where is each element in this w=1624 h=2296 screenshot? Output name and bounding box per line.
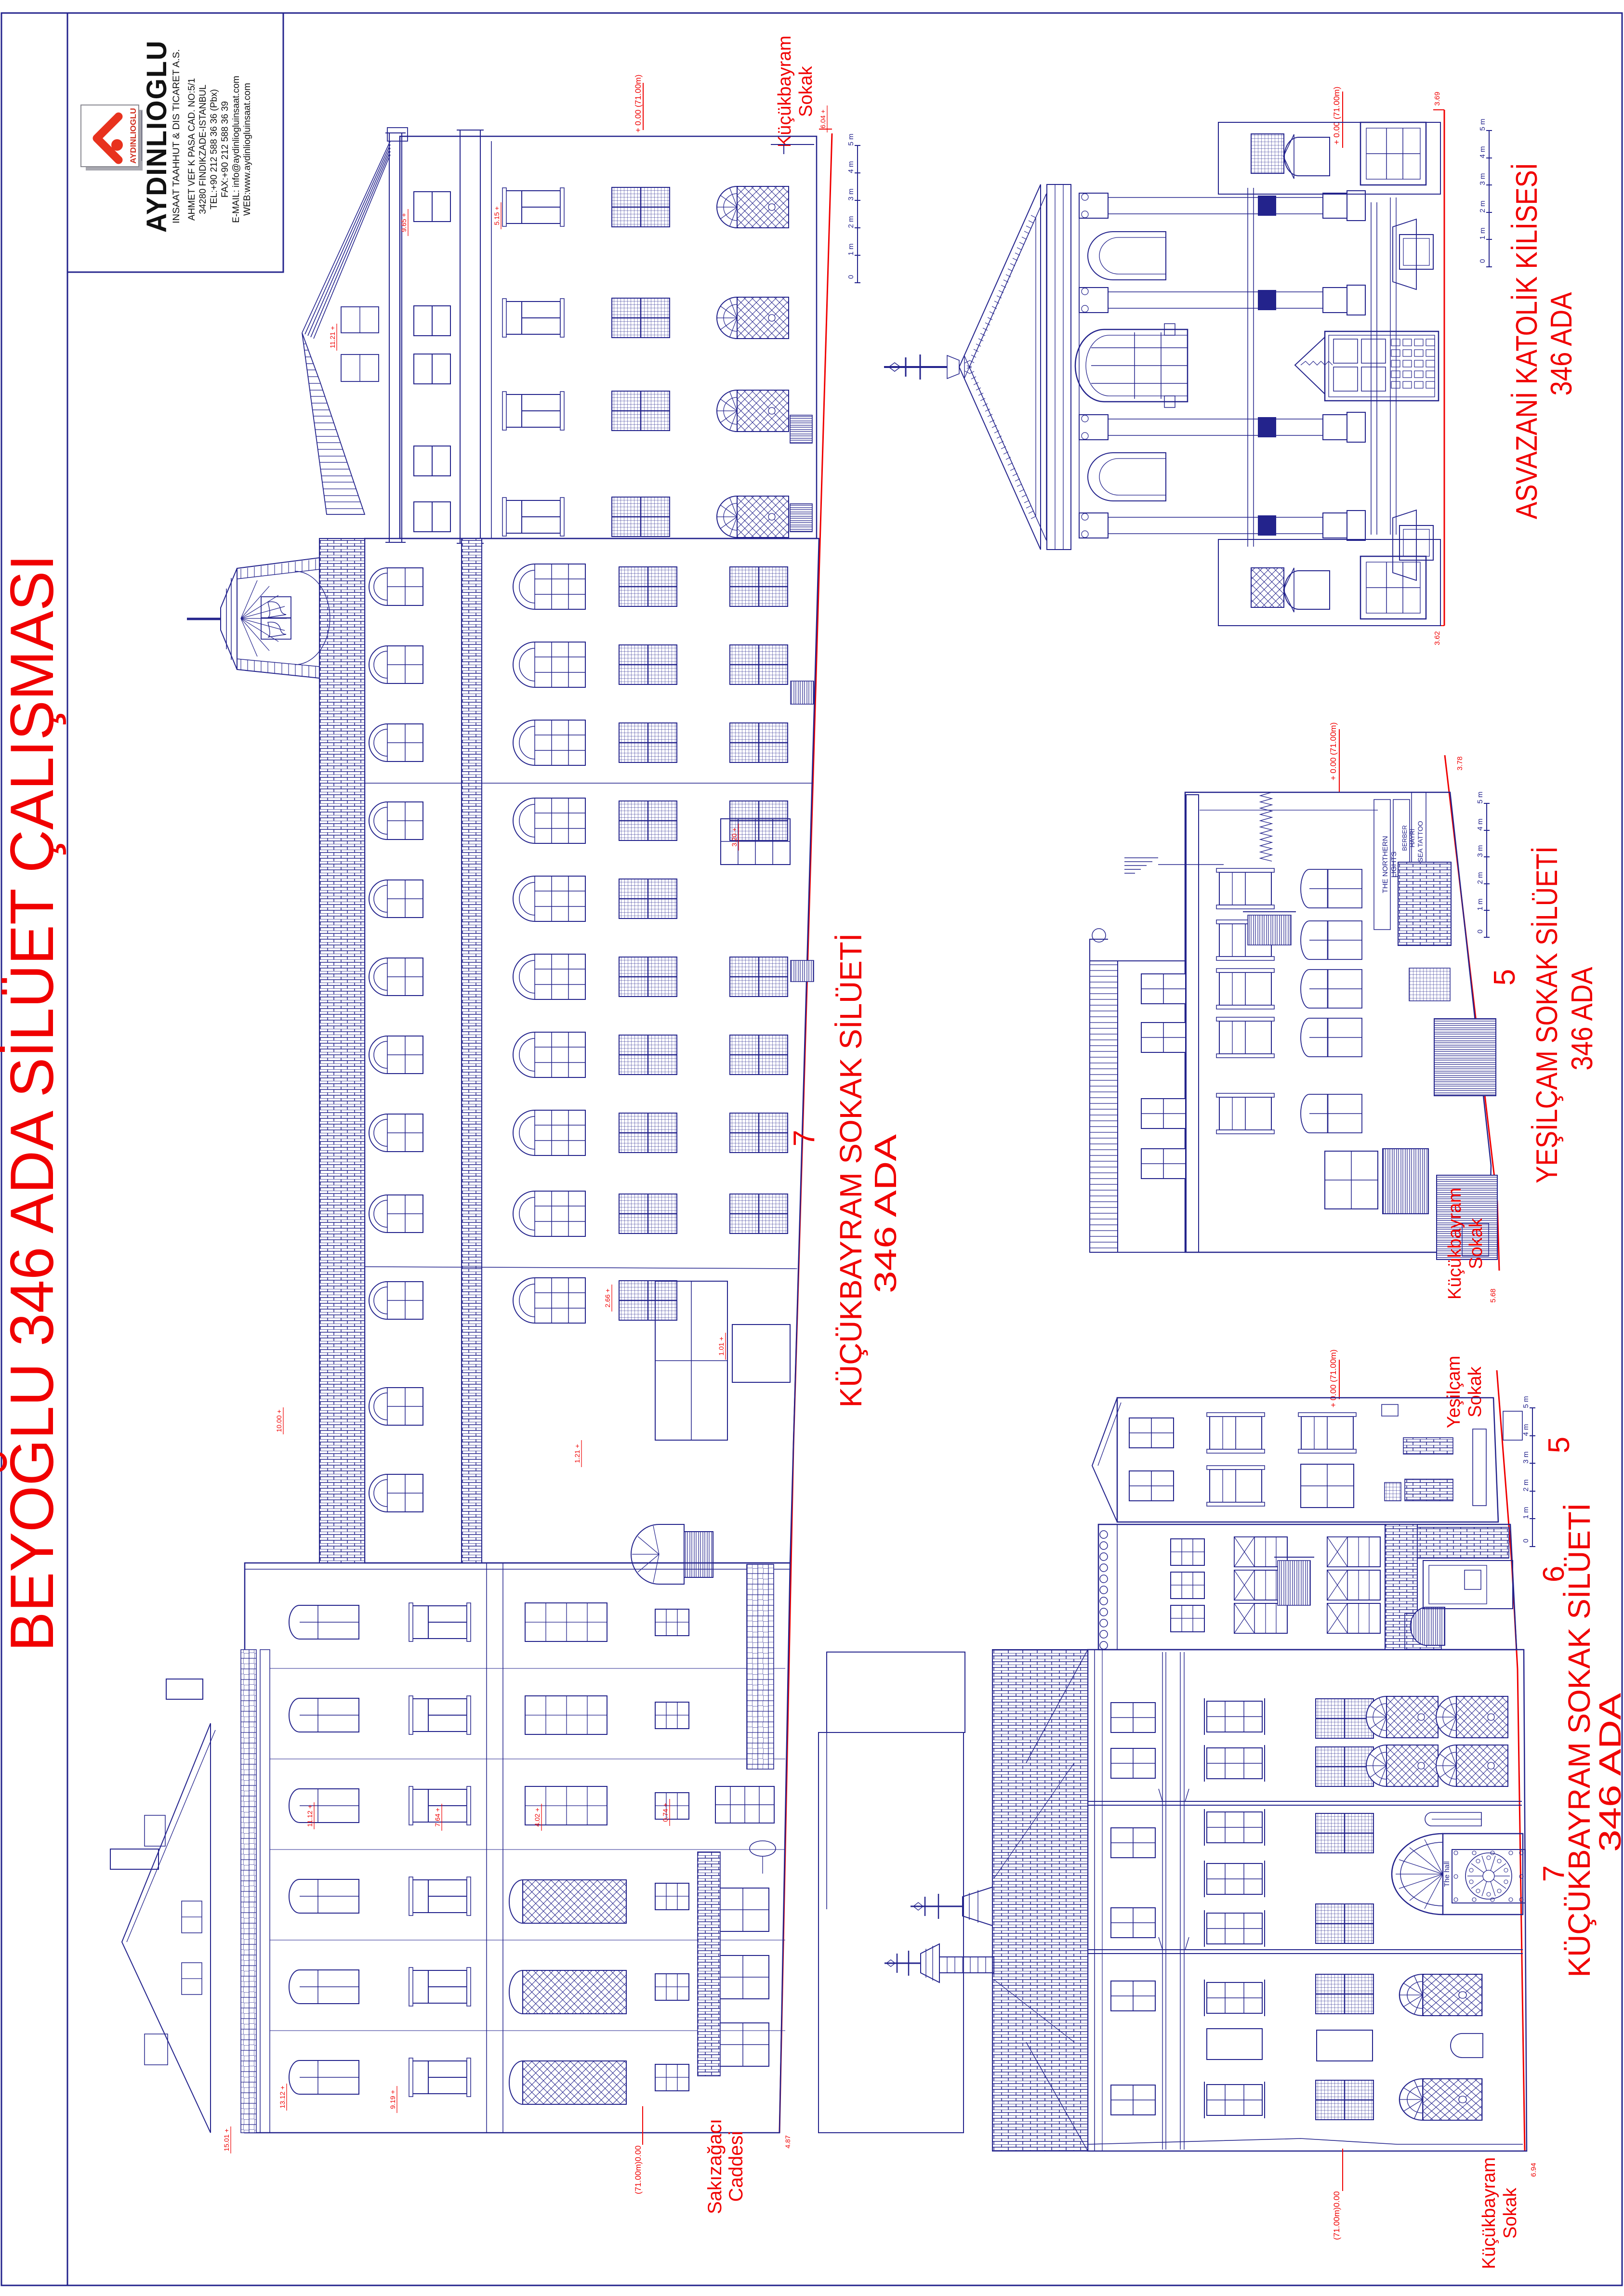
svg-text:(71.00m)0.00: (71.00m)0.00 xyxy=(634,2145,643,2194)
svg-text:346 ADA: 346 ADA xyxy=(868,1134,903,1293)
svg-text:1.21 +: 1.21 + xyxy=(573,1444,581,1463)
svg-text:3.20 +: 3.20 + xyxy=(730,827,738,846)
svg-text:+ 0.00 (71.00m): + 0.00 (71.00m) xyxy=(1329,1350,1338,1408)
svg-text:AYDINLIOGLU: AYDINLIOGLU xyxy=(141,40,172,233)
svg-text:7.64 +: 7.64 + xyxy=(434,1808,441,1826)
svg-text:11.12 +: 11.12 + xyxy=(306,1805,314,1827)
svg-text:0: 0 xyxy=(847,275,855,279)
svg-text:0: 0 xyxy=(1479,259,1487,263)
svg-text:3.78: 3.78 xyxy=(1456,756,1464,770)
svg-text:4.87: 4.87 xyxy=(784,2135,792,2148)
svg-text:FAX:+90 212 588 36 39: FAX:+90 212 588 36 39 xyxy=(220,101,230,197)
svg-text:Sokak: Sokak xyxy=(796,66,816,117)
svg-text:WEB:www.aydinliogluinsaat.com: WEB:www.aydinliogluinsaat.com xyxy=(242,83,252,216)
svg-text:3 m: 3 m xyxy=(1479,173,1487,185)
svg-text:346 ADA: 346 ADA xyxy=(1566,967,1599,1071)
svg-text:1 m: 1 m xyxy=(1522,1507,1530,1519)
svg-text:13.12 +: 13.12 + xyxy=(278,2086,286,2108)
svg-text:2 m: 2 m xyxy=(847,216,855,228)
svg-text:34280 FINDIKZADE-ISTANBUL: 34280 FINDIKZADE-ISTANBUL xyxy=(198,85,208,214)
svg-text:+ 0.00 (71.00m): + 0.00 (71.00m) xyxy=(634,75,643,133)
svg-text:9.19 +: 9.19 + xyxy=(389,2090,396,2109)
svg-text:(71.00m)0.00: (71.00m)0.00 xyxy=(1332,2191,1341,2240)
svg-text:HAYRİ: HAYRİ xyxy=(1409,829,1416,848)
svg-text:3 m: 3 m xyxy=(1522,1451,1530,1463)
svg-text:LIGHTS: LIGHTS xyxy=(1390,852,1398,878)
svg-text:AHMET VEF K PASA CAD. NO:5/1: AHMET VEF K PASA CAD. NO:5/1 xyxy=(187,78,197,221)
svg-text:THE NORTHERN: THE NORTHERN xyxy=(1381,836,1389,893)
svg-text:3.62: 3.62 xyxy=(1433,631,1441,645)
svg-text:Küçükbayram: Küçükbayram xyxy=(775,36,795,147)
svg-text:4 m: 4 m xyxy=(1476,818,1484,830)
svg-text:4 m: 4 m xyxy=(1522,1424,1530,1436)
svg-text:2 m: 2 m xyxy=(1522,1479,1530,1491)
svg-text:The hall: The hall xyxy=(1443,1861,1451,1887)
svg-text:0: 0 xyxy=(1476,930,1484,933)
svg-text:Küçükbayram: Küçükbayram xyxy=(1479,2157,1499,2269)
svg-text:4 m: 4 m xyxy=(1479,146,1487,158)
svg-text:6.04 +: 6.04 + xyxy=(819,109,827,128)
svg-text:BERBER: BERBER xyxy=(1401,825,1408,851)
svg-text:6.94: 6.94 xyxy=(1530,2163,1538,2177)
svg-text:INSAAT TAAHHUT & DIS TICAR: INSAAT TAAHHUT & DIS TICARET A.S. xyxy=(172,49,182,223)
svg-text:11.21 +: 11.21 + xyxy=(329,326,336,348)
svg-text:7: 7 xyxy=(788,1130,821,1146)
svg-text:5 m: 5 m xyxy=(847,133,855,145)
svg-text:346 ADA: 346 ADA xyxy=(1593,1693,1624,1852)
svg-text:E-MAIL: info@aydinliogluinsaat: E-MAIL: info@aydinliogluinsaat.com xyxy=(231,76,241,223)
svg-text:4 m: 4 m xyxy=(847,161,855,173)
svg-text:1 m: 1 m xyxy=(1476,898,1484,910)
svg-text:5: 5 xyxy=(1543,1437,1576,1453)
svg-text:2.66 +: 2.66 + xyxy=(604,1288,611,1307)
svg-text:0.74 +: 0.74 + xyxy=(661,1803,669,1822)
svg-text:Caddesi: Caddesi xyxy=(726,2131,747,2202)
svg-text:TEL:+90 212 588 36 36 (Pbx): TEL:+90 212 588 36 36 (Pbx) xyxy=(209,89,219,210)
svg-text:KÜÇÜKBAYRAM SOKAK SİLÜETİ: KÜÇÜKBAYRAM SOKAK SİLÜETİ xyxy=(1562,1503,1597,1978)
svg-text:Küçükbayram: Küçükbayram xyxy=(1445,1188,1465,1299)
svg-text:2 m: 2 m xyxy=(1479,200,1487,212)
svg-text:5: 5 xyxy=(1488,969,1521,985)
svg-text:Sokak: Sokak xyxy=(1465,1366,1485,1417)
svg-text:0: 0 xyxy=(1522,1539,1530,1543)
svg-text:Yeşilçam: Yeşilçam xyxy=(1444,1356,1464,1429)
svg-text:15.01 +: 15.01 + xyxy=(223,2128,230,2151)
svg-text:1 m: 1 m xyxy=(1479,227,1487,239)
svg-text:5.15 +: 5.15 + xyxy=(493,206,501,225)
svg-text:YEŞİLÇAM SOKAK SİLÜETİ: YEŞİLÇAM SOKAK SİLÜETİ xyxy=(1531,846,1564,1183)
svg-text:AYDINLIOGLU: AYDINLIOGLU xyxy=(129,108,138,164)
svg-text:+ 0.00 (71.00m): + 0.00 (71.00m) xyxy=(1332,87,1341,145)
svg-text:KÜÇÜKBAYRAM SOKAK SİLÜETİ: KÜÇÜKBAYRAM SOKAK SİLÜETİ xyxy=(833,933,868,1408)
svg-text:5 m: 5 m xyxy=(1476,791,1484,803)
svg-text:346 ADA: 346 ADA xyxy=(1545,292,1578,396)
svg-text:Sokak: Sokak xyxy=(1500,2187,1520,2239)
svg-text:1.01 +: 1.01 + xyxy=(717,1337,725,1355)
svg-text:Sokak: Sokak xyxy=(1466,1218,1486,1269)
svg-text:5 m: 5 m xyxy=(1479,118,1487,131)
svg-text:3 m: 3 m xyxy=(847,188,855,200)
svg-text:9.65 +: 9.65 + xyxy=(400,213,408,232)
svg-text:ASVAZANİ KATOLİK KİLİSESİ: ASVAZANİ KATOLİK KİLİSESİ xyxy=(1510,163,1544,519)
svg-text:3 m: 3 m xyxy=(1476,845,1484,857)
svg-text:Sakızağacı: Sakızağacı xyxy=(704,2119,726,2214)
svg-text:2 m: 2 m xyxy=(1476,872,1484,884)
svg-text:5.68: 5.68 xyxy=(1489,1288,1497,1302)
svg-text:10.00 +: 10.00 + xyxy=(275,1409,283,1432)
svg-text:3.69: 3.69 xyxy=(1433,92,1441,105)
svg-text:4.02 +: 4.02 + xyxy=(533,1808,541,1826)
svg-text:+ 0.00 (71.00m): + 0.00 (71.00m) xyxy=(1329,722,1338,781)
svg-text:5 m: 5 m xyxy=(1522,1396,1530,1408)
svg-text:1 m: 1 m xyxy=(847,243,855,255)
svg-text:BEYOĞLU 346 ADA SİLÜET ÇALIŞMA: BEYOĞLU 346 ADA SİLÜET ÇALIŞMASI xyxy=(0,554,66,1652)
